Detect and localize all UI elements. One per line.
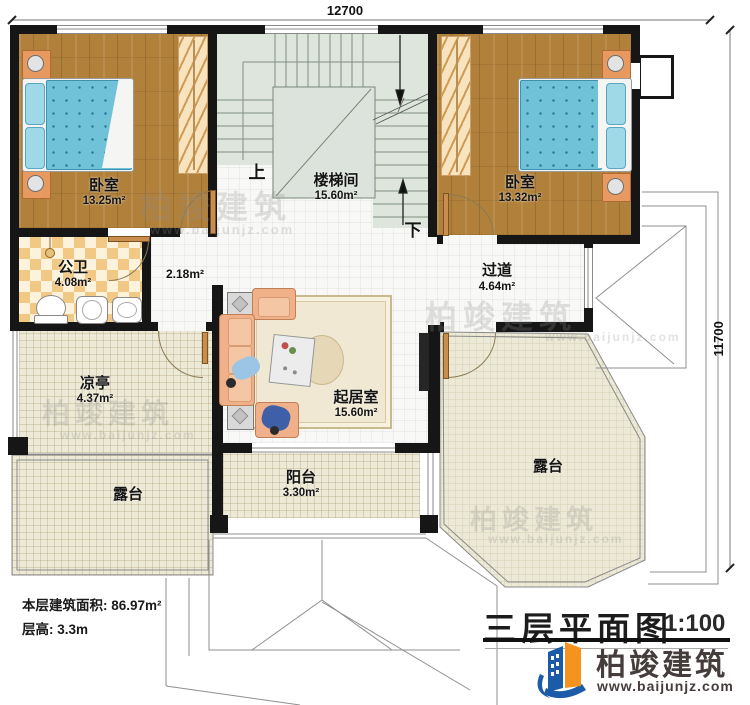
watermark-url: www.baijunjz.com: [545, 330, 681, 344]
room-label-bedroomR: 卧室: [505, 175, 535, 191]
lamp-icon: [607, 178, 624, 195]
floor-height-text: 层高: 3.3m: [22, 618, 88, 638]
wall-tv: [428, 325, 440, 453]
armchair-top: [252, 288, 296, 320]
lamp-icon: [27, 55, 44, 72]
tv-icon: [419, 333, 429, 391]
sink-icon: [112, 297, 142, 323]
room-area-bedroomR: 13.32m²: [499, 192, 542, 204]
table-dot: [283, 366, 287, 370]
wall-bedroomL-south-a: [10, 228, 108, 237]
basin-circle: [82, 300, 102, 320]
wall-stair-bedroomR: [428, 25, 437, 237]
room-label-bedroomL: 卧室: [89, 178, 119, 194]
room-label-terraceL: 露台: [113, 487, 143, 503]
wardrobe-rod: [193, 40, 195, 171]
room-label-balcony: 阳台: [286, 470, 316, 486]
bay-window-box: [638, 55, 674, 99]
window-hallway-east: [584, 248, 593, 308]
room-label-hallway: 过道: [482, 263, 512, 279]
nightstand: [602, 173, 631, 202]
nightstand: [22, 170, 51, 199]
floor-plan: 12700 11700 卧室 13.25m² 楼梯间 15.60m² 卧室 13…: [0, 0, 750, 705]
pillar-balcony-left: [210, 515, 228, 533]
room-area-balcony: 3.30m²: [283, 487, 319, 499]
door-leaf-terrace: [443, 333, 449, 379]
window-bedroomR: [483, 25, 603, 34]
window-stairwell: [265, 25, 378, 34]
wardrobe-left: [178, 36, 208, 174]
room-area-stairwell: 15.60m²: [315, 190, 358, 202]
pillow: [25, 83, 45, 125]
plan-scale: 1:100: [664, 610, 725, 638]
watermark-text: 柏竣建筑: [42, 392, 174, 432]
room-area-lobby: 2.18m²: [166, 268, 204, 281]
dimension-right: 11700: [712, 321, 726, 356]
room-label-stairwell: 楼梯间: [313, 173, 358, 189]
stair-direction-arrows: [373, 35, 435, 225]
pillar-balcony-right: [420, 515, 438, 533]
table-inlay: [232, 296, 249, 313]
wall-bedroomR-south-b: [497, 235, 640, 244]
room-label-terraceR: 露台: [533, 459, 563, 475]
lamp-icon: [27, 175, 44, 192]
toilet-tank: [34, 315, 68, 324]
watermark-url: www.baijunjz.com: [488, 532, 624, 546]
window-bedroomL: [57, 25, 167, 34]
wall-bedroomR-south-a: [437, 235, 443, 244]
company-website: www.baijunjz.com: [597, 678, 734, 694]
cushion: [228, 318, 252, 346]
wall-west: [10, 25, 19, 331]
cushion: [258, 297, 290, 317]
table-dot: [293, 370, 297, 374]
floor-area-text: 本层建筑面积: 86.97m²: [22, 594, 162, 614]
coffee-table: [269, 334, 316, 387]
shower-basin-icon: [76, 296, 108, 324]
room-area-living: 15.60m²: [335, 407, 378, 419]
room-area-bedroomL: 13.25m²: [83, 195, 126, 207]
door-leaf-bedroomR: [443, 193, 449, 236]
flower-dot: [281, 342, 289, 350]
wardrobe-rod: [456, 40, 458, 172]
dimension-top: 12700: [327, 4, 363, 18]
lamp-icon: [607, 55, 624, 72]
room-area-bathroom: 4.08m²: [55, 277, 91, 289]
door-leaf-pavilion: [202, 332, 208, 364]
bay-window-opening: [631, 63, 640, 89]
person-head: [270, 426, 279, 435]
stair-down-label: 下: [405, 222, 422, 240]
room-label-living: 起居室: [333, 390, 378, 406]
flower-dot: [289, 347, 297, 355]
stair-up-label: 上: [249, 164, 266, 182]
pillow: [606, 83, 626, 125]
nightstand: [22, 50, 51, 79]
person-head: [226, 378, 236, 388]
pillar-terrace-nw: [8, 437, 28, 455]
table-inlay: [232, 408, 249, 425]
pendant-lamp-icon: [46, 249, 55, 258]
balcony-slider: [252, 448, 395, 452]
room-label-bathroom: 公卫: [58, 260, 88, 276]
door-leaf-bathroom: [108, 236, 150, 242]
roof-bottom: [166, 534, 497, 705]
nightstand: [602, 50, 631, 79]
watermark-url: www.baijunjz.com: [150, 222, 294, 237]
watermark-url: www.baijunjz.com: [60, 428, 196, 442]
company-logo-icon: [530, 636, 594, 702]
sink-bowl: [117, 302, 137, 318]
wardrobe-right: [441, 36, 471, 176]
pillow: [606, 127, 626, 169]
bed-right-mattress: [520, 80, 602, 170]
room-label-pavilion: 凉亭: [80, 376, 110, 392]
wall-living-south-a: [212, 443, 252, 453]
pillow: [25, 127, 45, 169]
side-table: [227, 404, 254, 430]
